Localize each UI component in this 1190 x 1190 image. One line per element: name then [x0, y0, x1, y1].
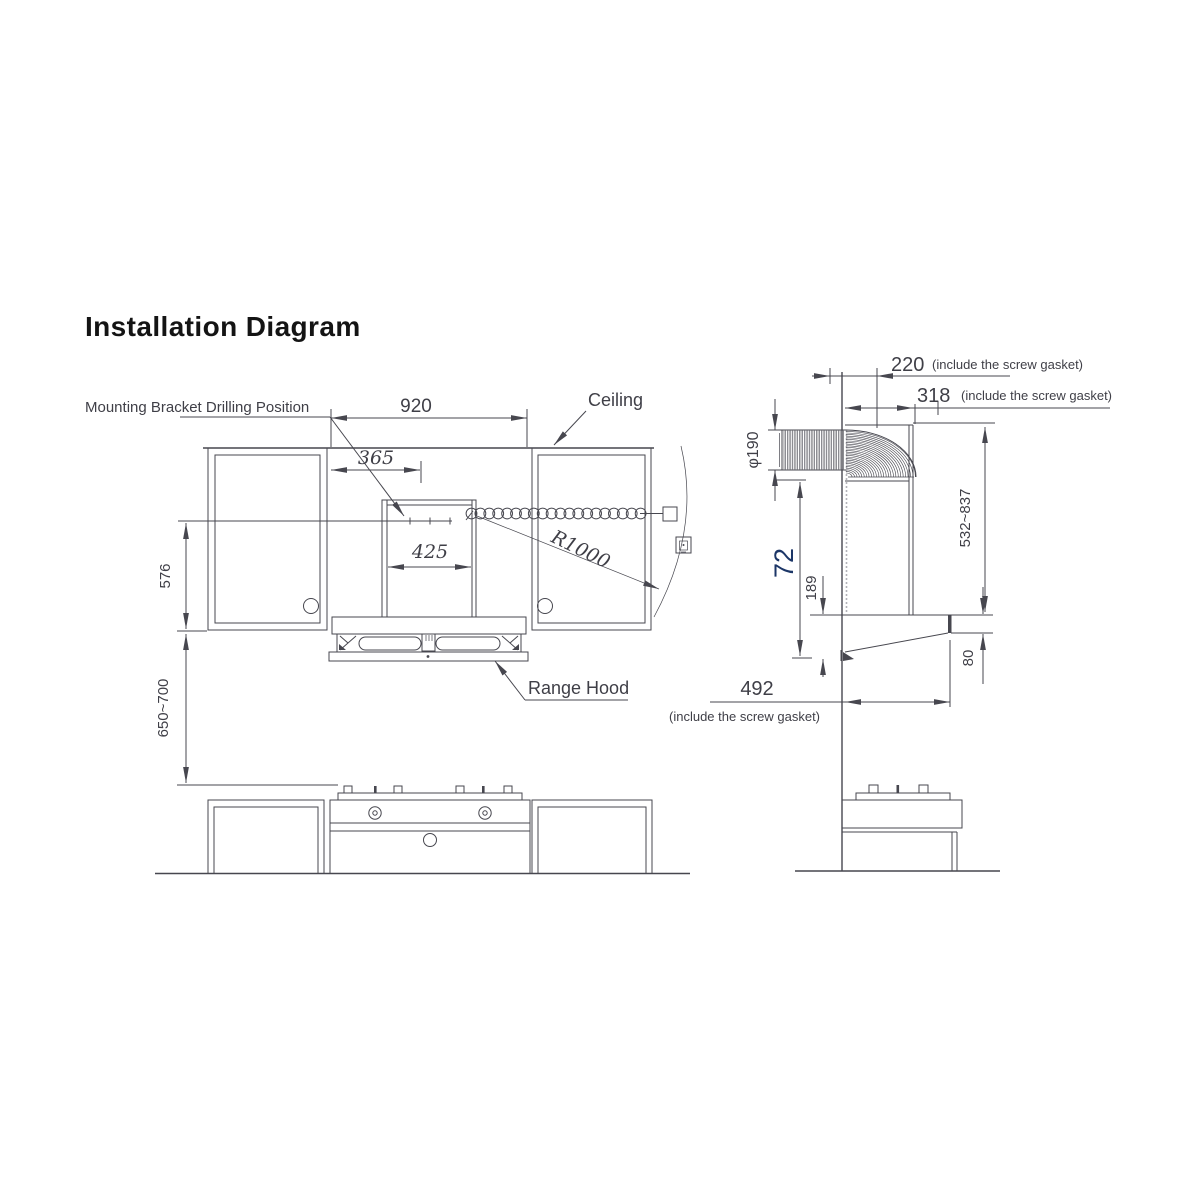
- duct-elbow: [846, 431, 915, 477]
- range-hood-front: [329, 617, 528, 661]
- left-wall-cabinet: [208, 448, 327, 630]
- dim-365: 365: [331, 447, 421, 483]
- installation-diagram-page: Installation Diagram: [0, 0, 1190, 1190]
- power-plug-symbol: [663, 507, 677, 521]
- dim-532-837: 532~837: [913, 423, 995, 612]
- dim-72: 72: [769, 480, 812, 658]
- dim-532-837-label: 532~837: [957, 489, 974, 548]
- cooktop-front: [330, 786, 530, 873]
- control-knob: [479, 807, 491, 819]
- cabinet-handle: [538, 599, 553, 614]
- mounting-bracket-label: Mounting Bracket Drilling Position: [85, 399, 309, 416]
- dim-576-label: 576: [157, 563, 174, 588]
- dim-650-700: 650~700: [155, 634, 338, 785]
- burner-tray: [338, 793, 522, 800]
- duct-corrugation: [784, 431, 844, 470]
- dim-318-note: (include the screw gasket): [961, 388, 1112, 403]
- cord-reach-arc: [654, 446, 687, 617]
- page-title: Installation Diagram: [85, 311, 361, 342]
- dim-425-label: 425: [411, 541, 448, 563]
- cabinet-handle: [304, 599, 319, 614]
- dim-365-label: 365: [358, 447, 394, 469]
- grease-filter: [359, 637, 421, 650]
- right-base-cabinet: [532, 800, 652, 873]
- dim-220-label: 220: [891, 354, 924, 376]
- dim-492-label: 492: [740, 678, 773, 700]
- dim-920-label: 920: [400, 396, 432, 417]
- control-knob: [369, 807, 381, 819]
- dim-318: 318 (include the screw gasket): [845, 385, 1112, 424]
- dim-492: 492 (include the screw gasket): [669, 640, 950, 724]
- dim-189-label: 189: [803, 575, 820, 600]
- dim-650-700-label: 650~700: [155, 679, 172, 738]
- dim-80: 80: [960, 587, 983, 684]
- power-cord-coil: R1000: [466, 446, 691, 617]
- dim-318-label: 318: [917, 385, 950, 407]
- dim-phi190-label: φ190: [745, 431, 762, 468]
- dim-189: 189: [803, 575, 823, 677]
- dim-920: 920: [331, 396, 527, 447]
- exhaust-duct: [780, 430, 917, 477]
- left-base-cabinet: [208, 800, 324, 873]
- control-knob: [424, 834, 437, 847]
- grease-filter: [436, 637, 500, 650]
- range-hood-annotation: Range Hood: [495, 661, 629, 700]
- cooktop-side: [842, 785, 962, 871]
- dim-576: 576: [157, 523, 207, 631]
- dim-492-note: (include the screw gasket): [669, 709, 820, 724]
- ceiling-annotation: Ceiling: [554, 390, 643, 445]
- dim-phi190: φ190: [745, 399, 784, 501]
- dim-220-note: (include the screw gasket): [932, 357, 1083, 372]
- filter-clip: [422, 634, 435, 651]
- outlet-symbol: [676, 537, 691, 553]
- side-view-elevation: 220 (include the screw gasket) 318 (incl…: [669, 354, 1112, 871]
- range-hood-label: Range Hood: [528, 678, 629, 698]
- dim-80-label: 80: [960, 650, 977, 667]
- dim-r1000-label: R1000: [547, 526, 614, 574]
- front-view-elevation: R1000 Mounting Bracket Drilling Position…: [85, 390, 691, 874]
- ceiling-label: Ceiling: [588, 390, 643, 410]
- dim-425: 425: [388, 541, 471, 567]
- dim-72-label: 72: [769, 548, 799, 578]
- installation-diagram-drawing: Installation Diagram: [0, 0, 1190, 1190]
